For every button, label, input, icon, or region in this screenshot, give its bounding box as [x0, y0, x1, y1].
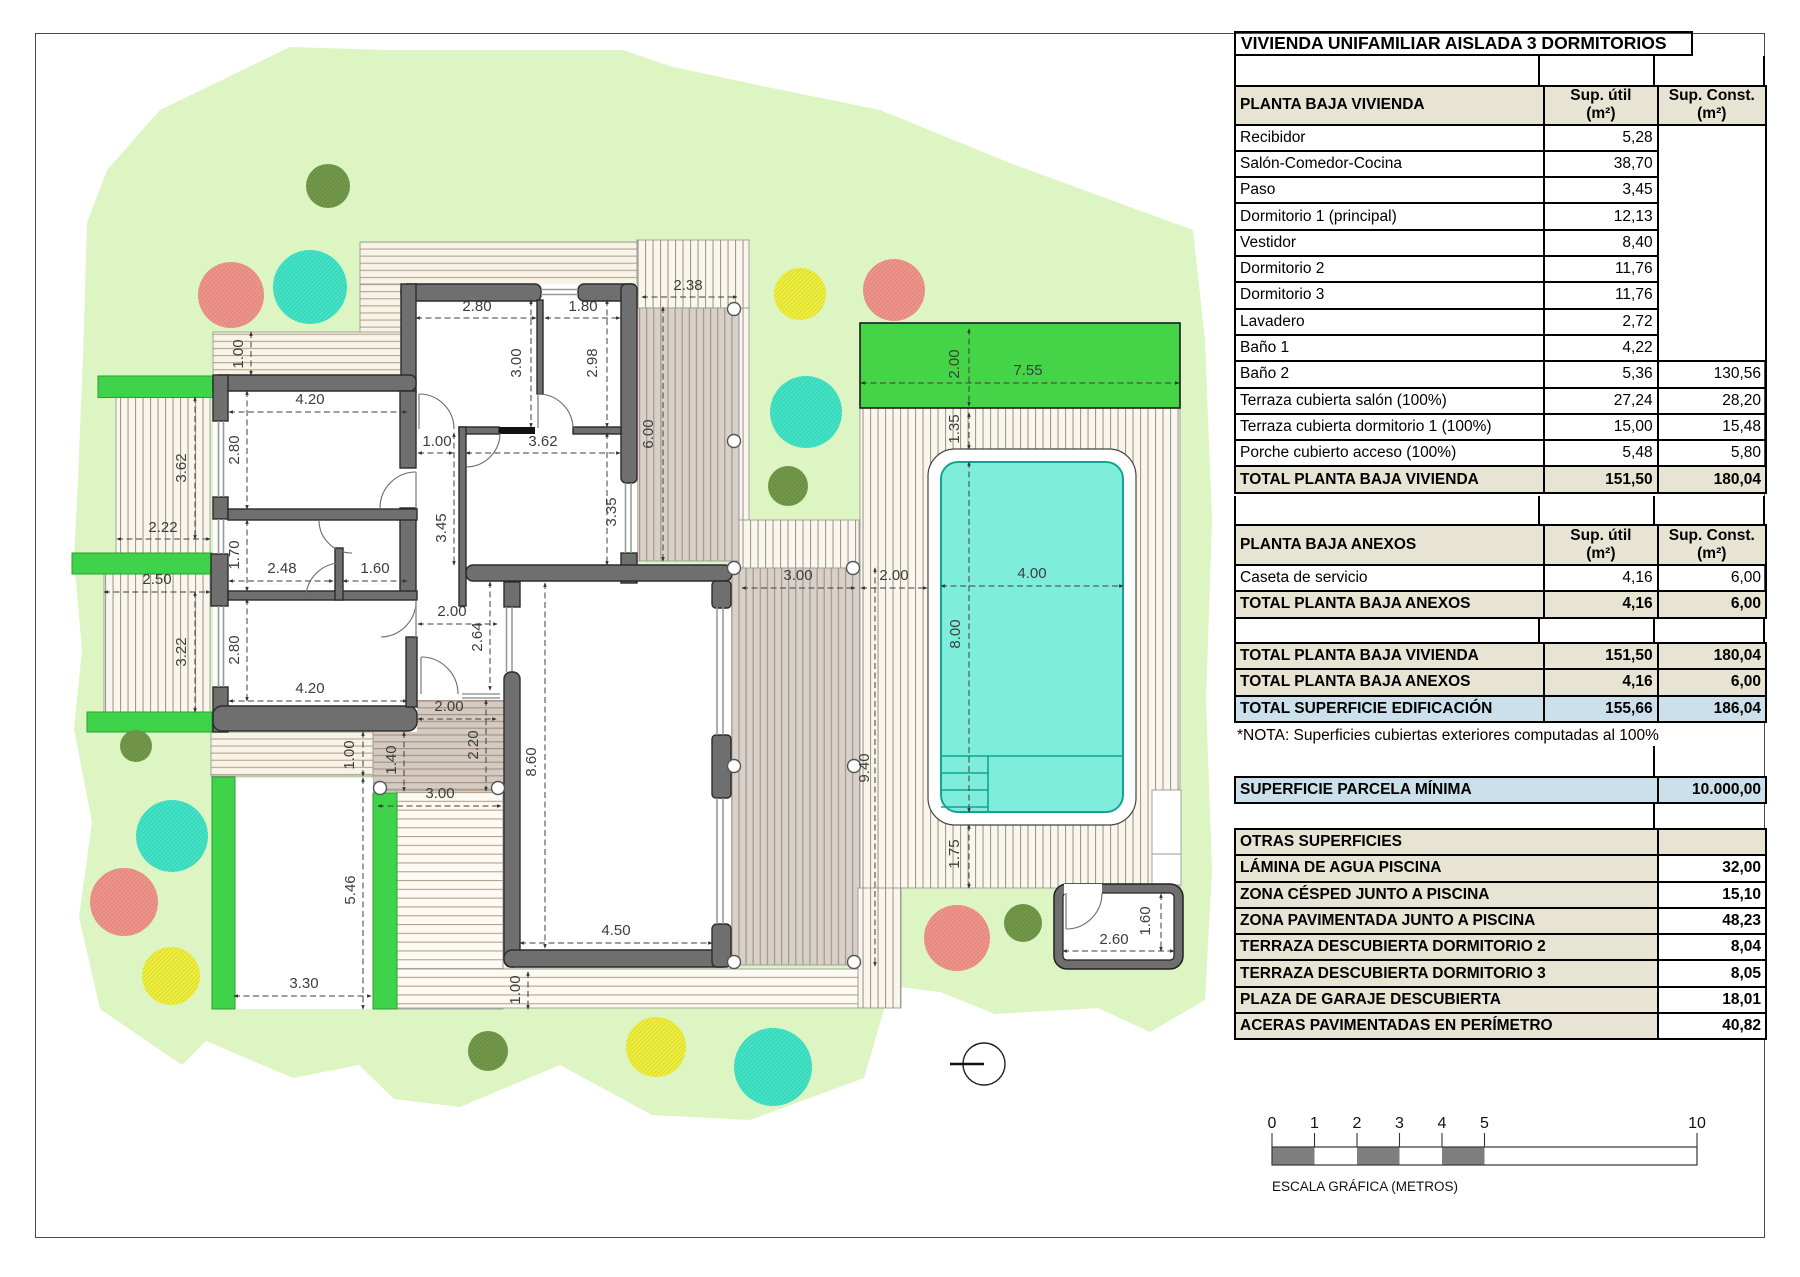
svg-text:6.00: 6.00 [640, 419, 657, 448]
svg-text:2.00: 2.00 [879, 567, 908, 584]
svg-text:1.00: 1.00 [230, 339, 247, 368]
svg-text:4: 4 [1438, 1115, 1447, 1132]
svg-text:3.45: 3.45 [433, 513, 450, 542]
svg-text:3.00: 3.00 [783, 567, 812, 584]
svg-text:3: 3 [1395, 1115, 1404, 1132]
svg-text:2.38: 2.38 [673, 277, 702, 294]
svg-text:5.46: 5.46 [342, 875, 359, 904]
svg-text:2.20: 2.20 [465, 730, 482, 759]
svg-text:0: 0 [1268, 1115, 1277, 1132]
svg-text:3.00: 3.00 [425, 785, 454, 802]
svg-text:1.00: 1.00 [422, 433, 451, 450]
svg-text:1.60: 1.60 [1137, 906, 1154, 935]
svg-text:1.60: 1.60 [360, 560, 389, 577]
svg-text:1.75: 1.75 [946, 839, 963, 868]
svg-text:4.50: 4.50 [601, 922, 630, 939]
svg-text:8.60: 8.60 [523, 747, 540, 776]
svg-text:1.35: 1.35 [946, 414, 963, 443]
svg-text:4.00: 4.00 [1017, 565, 1046, 582]
svg-text:1.40: 1.40 [383, 745, 400, 774]
svg-text:3.22: 3.22 [173, 637, 190, 666]
svg-text:3.00: 3.00 [508, 348, 525, 377]
svg-text:2.98: 2.98 [584, 348, 601, 377]
svg-text:2.64: 2.64 [469, 622, 486, 651]
svg-text:1.80: 1.80 [568, 298, 597, 315]
svg-text:10: 10 [1688, 1115, 1706, 1132]
svg-text:9.40: 9.40 [856, 753, 873, 782]
svg-text:2.48: 2.48 [267, 560, 296, 577]
svg-text:5: 5 [1480, 1115, 1489, 1132]
svg-text:4.20: 4.20 [295, 680, 324, 697]
svg-text:2.80: 2.80 [226, 635, 243, 664]
svg-text:3.30: 3.30 [289, 975, 318, 992]
svg-text:1.00: 1.00 [341, 740, 358, 769]
svg-text:3.35: 3.35 [603, 497, 620, 526]
svg-text:2.80: 2.80 [462, 298, 491, 315]
svg-text:2.00: 2.00 [437, 603, 466, 620]
svg-text:2.00: 2.00 [434, 698, 463, 715]
svg-text:2.00: 2.00 [946, 349, 963, 378]
svg-text:ESCALA GRÁFICA (METROS): ESCALA GRÁFICA (METROS) [1272, 1179, 1458, 1194]
svg-text:1: 1 [1310, 1115, 1319, 1132]
svg-text:3.62: 3.62 [528, 433, 557, 450]
svg-text:4.20: 4.20 [295, 391, 324, 408]
svg-text:1.70: 1.70 [226, 540, 243, 569]
svg-text:2.50: 2.50 [142, 571, 171, 588]
svg-text:2: 2 [1353, 1115, 1362, 1132]
svg-text:2.60: 2.60 [1099, 931, 1128, 948]
svg-text:8.00: 8.00 [947, 619, 964, 648]
svg-text:1.00: 1.00 [507, 975, 524, 1004]
svg-text:2.22: 2.22 [148, 519, 177, 536]
svg-text:3.62: 3.62 [173, 453, 190, 482]
svg-text:2.80: 2.80 [226, 435, 243, 464]
svg-text:7.55: 7.55 [1013, 362, 1042, 379]
